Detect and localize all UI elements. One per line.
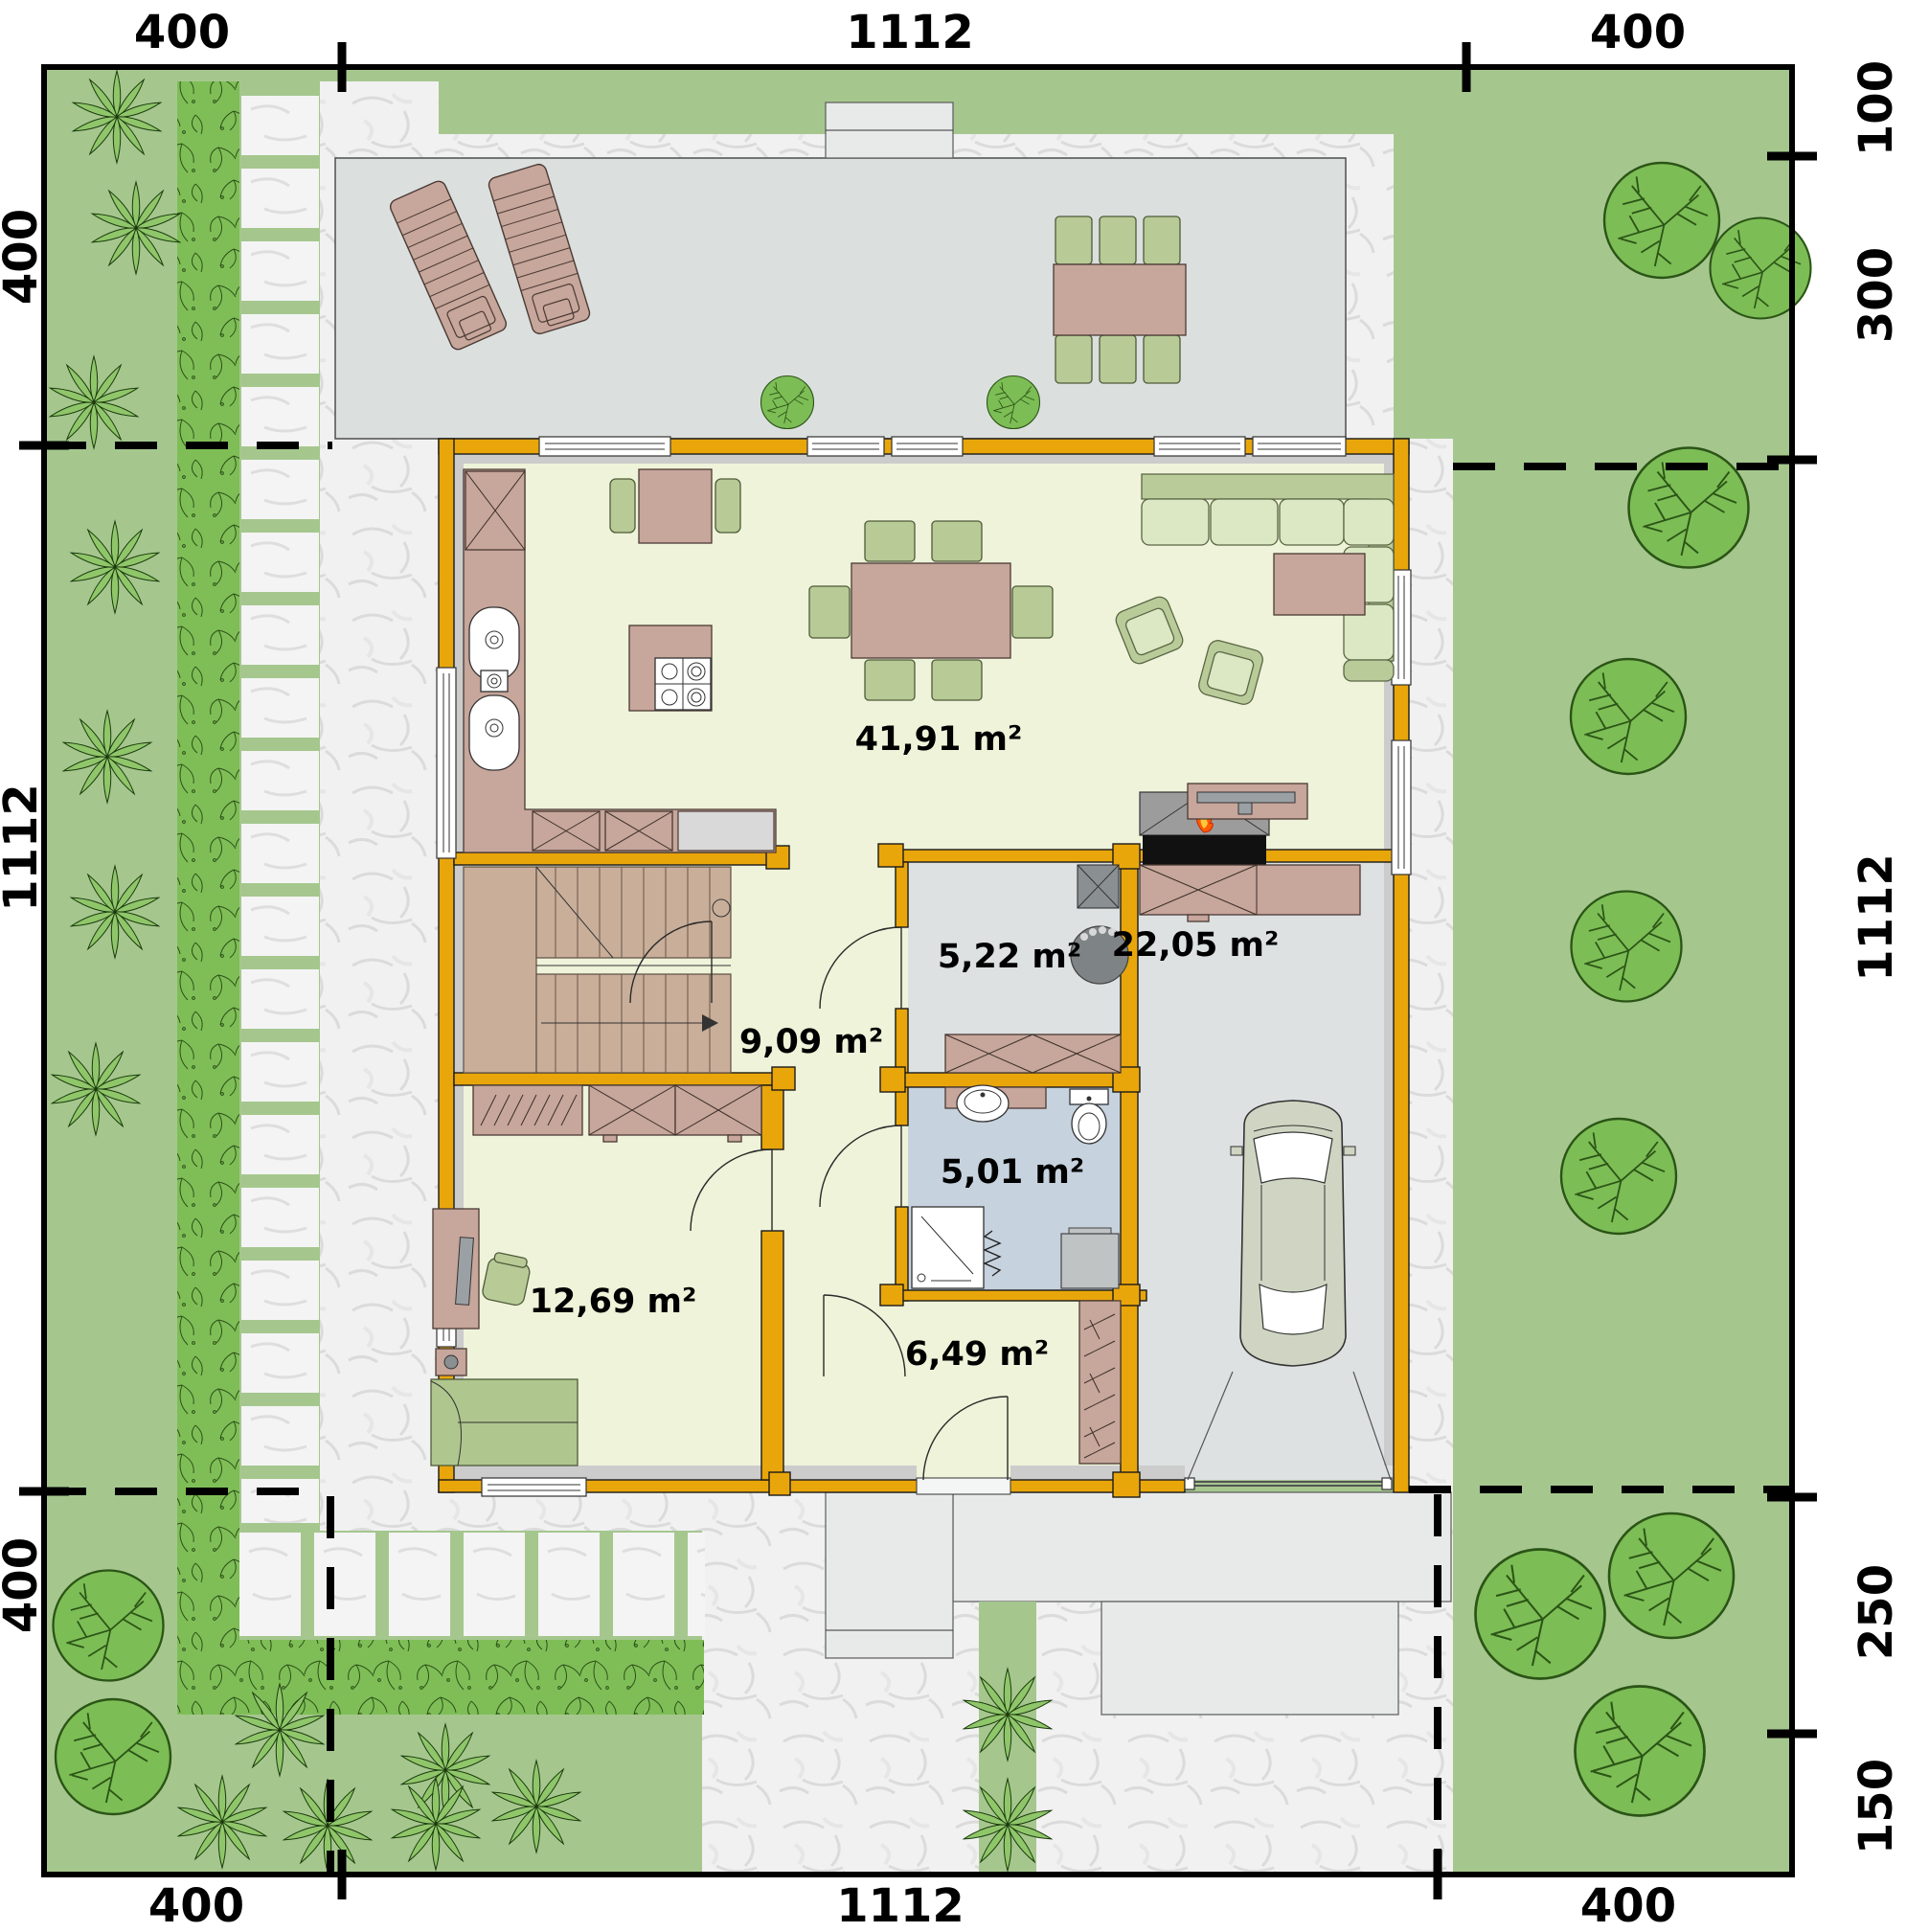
dim-top-left: 400 <box>134 6 230 59</box>
label-office: 12,69 m² <box>530 1283 697 1321</box>
dim-bottom-left: 400 <box>148 1879 244 1932</box>
terrace-bush <box>987 376 1040 429</box>
toilet <box>1070 1089 1108 1144</box>
dim-right-300: 300 <box>1850 247 1903 343</box>
kitchen-island <box>629 625 712 711</box>
base-cabinet <box>605 811 672 851</box>
side-table <box>436 1349 466 1375</box>
entry-door-threshold <box>917 1478 1010 1494</box>
window <box>539 437 670 456</box>
base-cabinet <box>533 811 600 851</box>
window <box>807 437 884 456</box>
tv <box>1197 792 1295 803</box>
utility-counter <box>945 1034 1121 1073</box>
dim-bottom-right: 400 <box>1580 1879 1676 1932</box>
garage-cabinet <box>1140 865 1360 921</box>
window <box>482 1478 586 1496</box>
window <box>1253 437 1346 456</box>
terrace-table <box>1054 264 1186 335</box>
window <box>1154 437 1245 456</box>
dim-left-top: 400 <box>0 209 48 305</box>
window <box>892 437 963 456</box>
coffee-table <box>1274 554 1365 615</box>
dim-right-150: 150 <box>1850 1759 1903 1854</box>
label-hall: 9,09 m² <box>739 1023 883 1061</box>
car <box>1231 1101 1355 1366</box>
hall-cabinet <box>589 1085 675 1135</box>
daybed <box>431 1379 578 1466</box>
dim-bottom-center: 1112 <box>836 1879 964 1932</box>
dim-right-250: 250 <box>1850 1564 1903 1660</box>
dining-table <box>851 563 1010 658</box>
coat-rack <box>473 1085 761 1142</box>
desk <box>433 1209 479 1329</box>
entry-wardrobe <box>1079 1301 1121 1464</box>
dim-top-center: 1112 <box>846 6 974 59</box>
dim-left-middle: 1112 <box>0 784 48 912</box>
tv-sideboard <box>1188 784 1307 819</box>
shower <box>912 1207 984 1288</box>
bath-cabinet <box>1061 1228 1119 1288</box>
label-utility: 5,22 m² <box>938 938 1081 976</box>
window <box>437 668 456 858</box>
washbasin <box>957 1085 1009 1122</box>
stepping-stones-column <box>241 96 319 1523</box>
terrace-dining-set <box>1054 216 1186 383</box>
site-plan: 41,91 m² 5,22 m² 22,05 m² 9,09 m² 5,01 m… <box>0 0 1929 1932</box>
entry-porch <box>826 1492 953 1658</box>
stepping-stones-row <box>239 1533 705 1636</box>
window <box>1392 740 1411 875</box>
dim-left-bottom: 400 <box>0 1537 48 1633</box>
label-bath: 5,01 m² <box>941 1153 1084 1192</box>
terrace-steps <box>826 102 953 158</box>
breakfast-table <box>610 469 740 543</box>
fridge <box>465 471 525 550</box>
dim-top-right: 400 <box>1590 6 1686 59</box>
dim-right-1112: 1112 <box>1850 853 1903 982</box>
utility-vent-box <box>1078 865 1119 908</box>
window <box>1392 570 1411 685</box>
hall-cabinet <box>675 1085 761 1135</box>
dim-right-100: 100 <box>1850 60 1903 156</box>
dishwasher <box>678 811 774 851</box>
label-garage: 22,05 m² <box>1112 926 1280 965</box>
label-living: 41,91 m² <box>855 720 1023 759</box>
label-entry: 6,49 m² <box>905 1335 1049 1374</box>
floor-plan-page: 41,91 m² 5,22 m² 22,05 m² 9,09 m² 5,01 m… <box>0 0 1929 1932</box>
terrace-bush <box>761 376 814 429</box>
